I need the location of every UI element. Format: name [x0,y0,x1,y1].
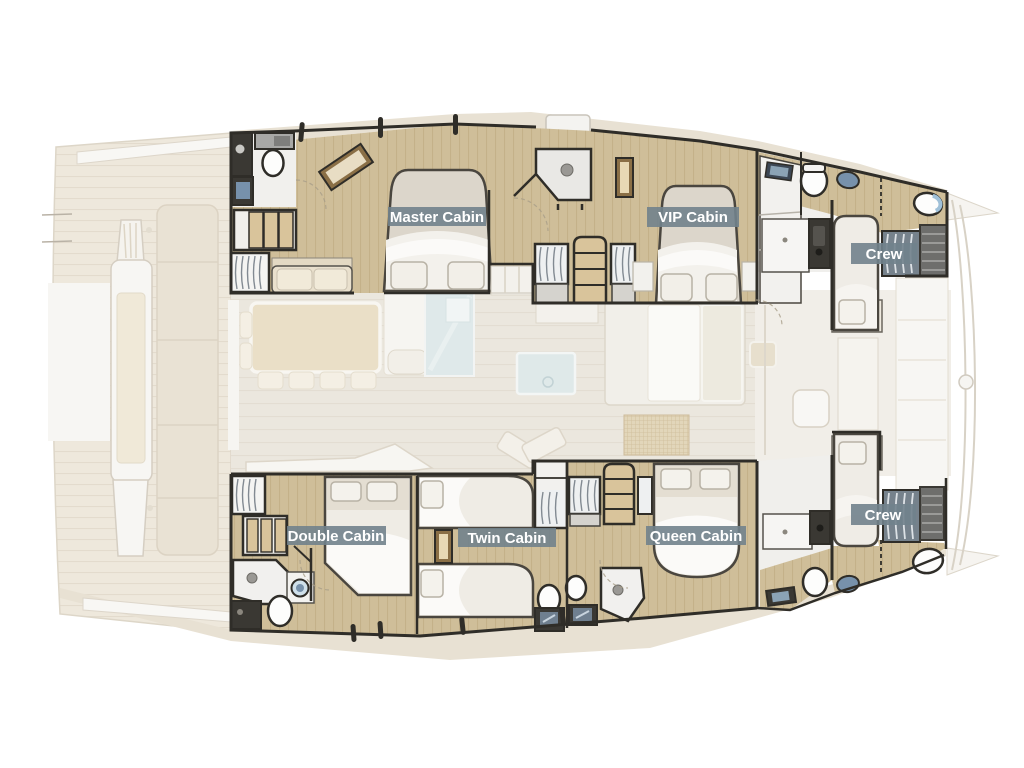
svg-text:Crew: Crew [866,246,903,263]
svg-text:Twin Cabin: Twin Cabin [468,530,547,547]
svg-text:Crew: Crew [865,507,902,524]
svg-text:VIP Cabin: VIP Cabin [658,209,728,226]
svg-text:Queen Cabin: Queen Cabin [650,528,743,545]
svg-text:Master Cabin: Master Cabin [390,209,484,226]
svg-text:Double Cabin: Double Cabin [288,528,385,545]
